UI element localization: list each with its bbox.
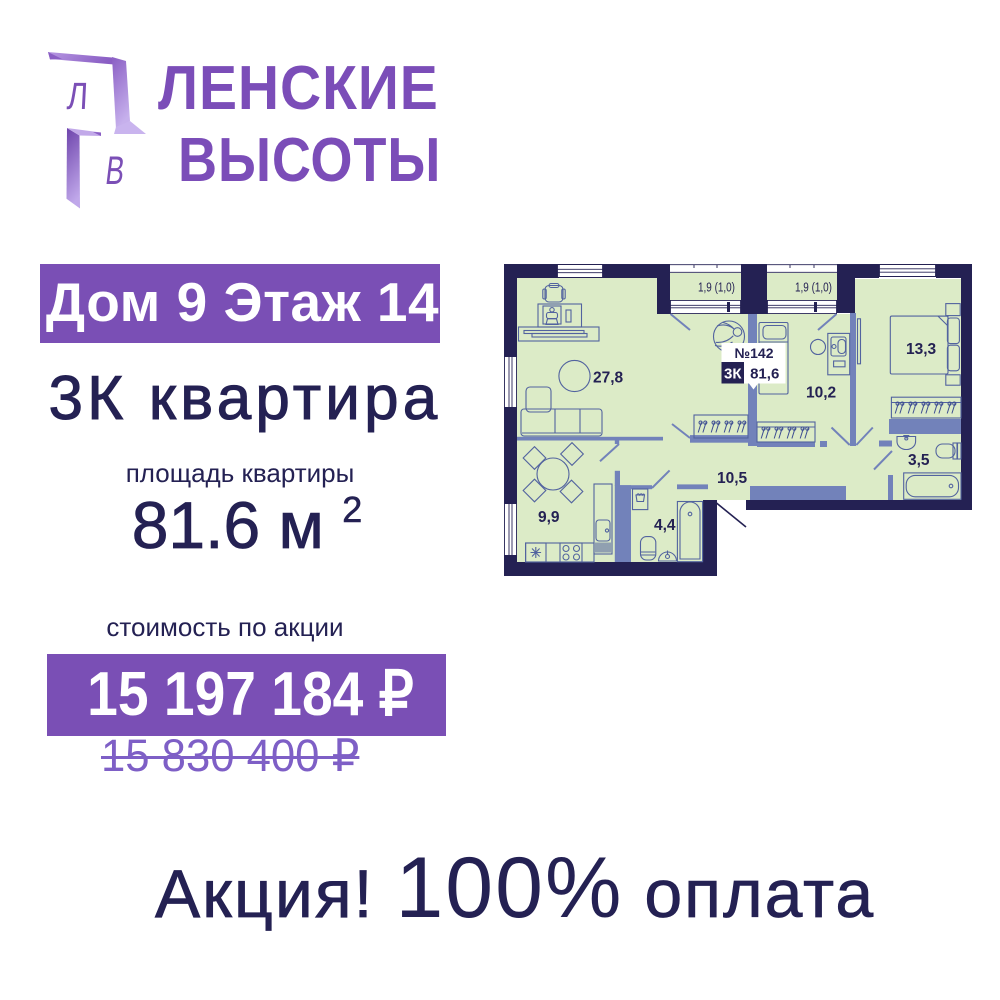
svg-text:10,2: 10,2 <box>806 385 836 402</box>
svg-text:3,5: 3,5 <box>908 452 930 469</box>
svg-text:81,6: 81,6 <box>750 366 779 383</box>
svg-text:3К: 3К <box>724 366 742 383</box>
svg-text:9,9: 9,9 <box>538 509 560 526</box>
svg-text:10,5: 10,5 <box>717 470 748 487</box>
svg-text:1,9 (1,0): 1,9 (1,0) <box>795 280 832 295</box>
svg-text:13,3: 13,3 <box>906 341 937 358</box>
svg-text:№142: №142 <box>735 345 774 361</box>
svg-text:4,4: 4,4 <box>654 517 676 534</box>
svg-text:Л: Л <box>66 76 89 118</box>
svg-text:В: В <box>103 148 127 193</box>
svg-text:27,8: 27,8 <box>593 370 624 387</box>
svg-text:1,9 (1,0): 1,9 (1,0) <box>698 280 735 295</box>
